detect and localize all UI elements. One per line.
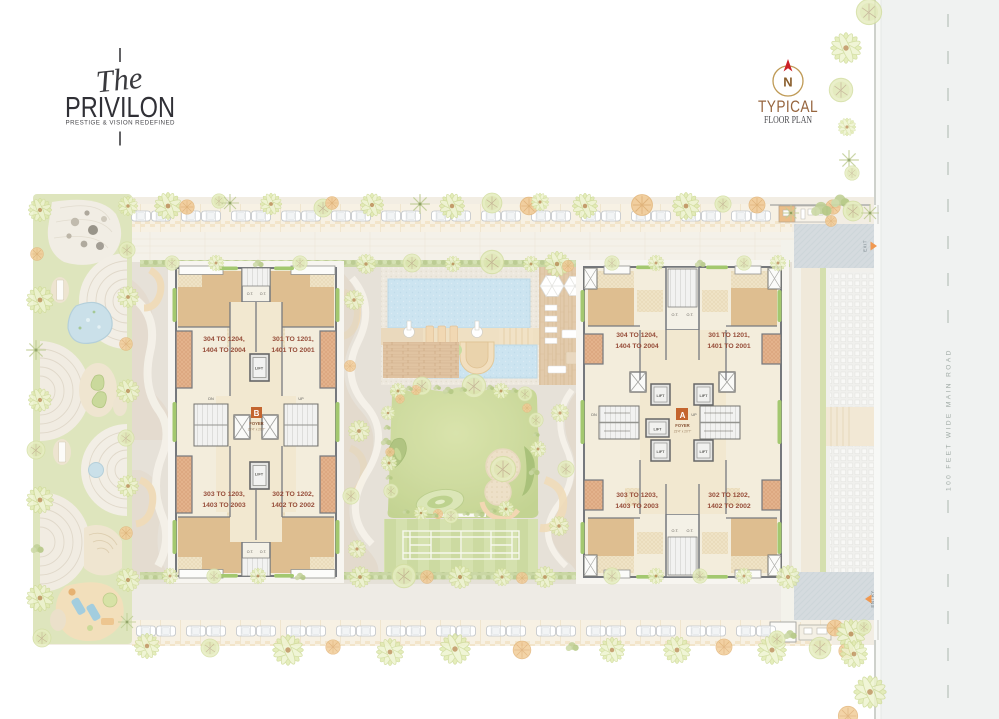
svg-text:303 TO 1203,: 303 TO 1203, bbox=[616, 492, 658, 499]
svg-text:1401 TO 2001: 1401 TO 2001 bbox=[271, 347, 315, 354]
svg-text:303 TO 1203,: 303 TO 1203, bbox=[203, 491, 245, 498]
svg-text:UP: UP bbox=[298, 397, 304, 401]
svg-text:O.T.: O.T. bbox=[672, 313, 679, 317]
svg-text:1403 TO 2003: 1403 TO 2003 bbox=[202, 502, 246, 509]
svg-text:O.T.: O.T. bbox=[672, 529, 679, 533]
svg-text:FOYER: FOYER bbox=[249, 421, 263, 426]
svg-text:302 TO 1202,: 302 TO 1202, bbox=[272, 491, 314, 498]
svg-text:LIFT: LIFT bbox=[255, 366, 264, 371]
svg-text:B: B bbox=[254, 409, 260, 418]
svg-text:A: A bbox=[680, 411, 686, 420]
svg-text:O.T.: O.T. bbox=[247, 550, 254, 554]
svg-text:DN: DN bbox=[208, 397, 214, 401]
svg-text:1404 TO 2004: 1404 TO 2004 bbox=[202, 347, 246, 354]
svg-text:302 TO 1202,: 302 TO 1202, bbox=[708, 492, 750, 499]
svg-text:FOYER: FOYER bbox=[675, 423, 689, 428]
svg-text:23'4" x 20'7": 23'4" x 20'7" bbox=[674, 430, 691, 434]
svg-text:23'4" x 20'7": 23'4" x 20'7" bbox=[248, 428, 265, 432]
svg-text:301 TO 1201,: 301 TO 1201, bbox=[272, 336, 314, 343]
svg-text:O.T.: O.T. bbox=[687, 529, 694, 533]
svg-text:O.T.: O.T. bbox=[260, 550, 267, 554]
svg-text:304 TO 1204,: 304 TO 1204, bbox=[616, 332, 658, 339]
svg-text:LIFT: LIFT bbox=[656, 394, 665, 398]
svg-text:100 FEET WIDE MAIN ROAD: 100 FEET WIDE MAIN ROAD bbox=[946, 349, 953, 491]
svg-text:DN: DN bbox=[591, 413, 597, 417]
svg-text:1403 TO 2003: 1403 TO 2003 bbox=[615, 503, 659, 510]
svg-text:1404 TO 2004: 1404 TO 2004 bbox=[615, 343, 659, 350]
svg-text:EXIT: EXIT bbox=[863, 240, 868, 252]
svg-text:N: N bbox=[783, 75, 792, 90]
svg-text:PRESTIGE & VISION REDEFINED: PRESTIGE & VISION REDEFINED bbox=[66, 120, 176, 127]
svg-text:O.T.: O.T. bbox=[247, 292, 254, 296]
svg-text:1402 TO 2002: 1402 TO 2002 bbox=[271, 502, 315, 509]
svg-text:O.T.: O.T. bbox=[260, 292, 267, 296]
svg-text:304 TO 1204,: 304 TO 1204, bbox=[203, 336, 245, 343]
svg-text:1401 TO 2001: 1401 TO 2001 bbox=[707, 343, 751, 350]
svg-text:LIFT: LIFT bbox=[653, 428, 662, 432]
svg-text:UP: UP bbox=[691, 413, 697, 417]
svg-text:LIFT: LIFT bbox=[699, 450, 708, 454]
svg-text:301 TO 1201,: 301 TO 1201, bbox=[708, 332, 750, 339]
svg-text:FLOOR PLAN: FLOOR PLAN bbox=[764, 114, 812, 126]
svg-text:LIFT: LIFT bbox=[699, 394, 708, 398]
svg-text:LIFT: LIFT bbox=[255, 472, 264, 477]
svg-text:O.T.: O.T. bbox=[687, 313, 694, 317]
svg-text:1402 TO 2002: 1402 TO 2002 bbox=[707, 503, 751, 510]
svg-text:LIFT: LIFT bbox=[656, 450, 665, 454]
